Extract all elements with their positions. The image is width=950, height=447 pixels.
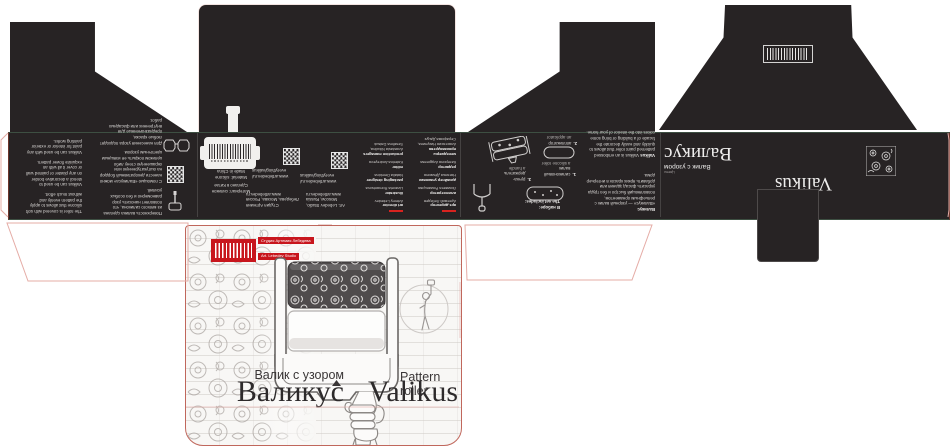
flap-left [10,22,187,132]
barcode-digits [211,160,249,162]
credit-role: менеджеры производства [408,146,456,156]
flap-right [468,22,655,132]
item-en: a handle [509,166,526,171]
item-number: 3. [527,168,531,182]
lid-barcode [763,45,813,63]
credit-name: Katerina Andreyeva [357,159,403,164]
about-heading-en: Valikus [640,153,655,158]
item-number: 1. [572,163,576,177]
credit-name: Anastasia Nikulina, Serafima Datsuk [357,141,403,151]
fold-line [660,133,661,217]
site-en: www.artlebedev.ru [306,191,356,197]
credit-name: Анастасия Никулина, Серафима Дацук [408,136,456,146]
feature-en-3: Valikus can be used with any paint for i… [26,138,82,155]
fold-line [197,133,198,217]
studio-address-ru: Студия Артемия Лебедева, Москва, Россия … [246,188,300,208]
credit-name: Lizaveta Romantsova [357,185,403,190]
sticker-tab-right [254,146,260,160]
about-ru: Валикус «Валикус» — узорный валик с рель… [585,162,655,212]
set-heading-ru: В наборе: [512,204,560,210]
credits-ru: арт-директорАртемий Лебедев иллюстраторЛ… [408,136,456,212]
fold-line [460,133,461,217]
main-title-en: Valikus [354,377,458,407]
credit-name: Катерина Андреева [408,159,456,164]
set-item-3: 3. ручка-держатель a handle [498,168,531,182]
packaging-dieline: The roller is covered with soft silicone… [0,0,950,447]
silicone-roller-illustration [526,186,564,201]
item-number: 2. [573,134,577,146]
specs-en: Material: silicone Made in China [206,169,256,180]
item-en: a silicone roller [542,161,571,166]
sticker-tab-left [200,146,206,160]
store-url-line1: www.artlebedev.ru/ [252,173,298,179]
store-link-ru: www.artlebedev.ru/ everything/valikus [252,168,298,179]
address-en: Art. Lebedev Studio, Moscow, Russia [306,197,356,208]
credit-name: Лизавета Романцова [408,185,456,190]
made-en: Made in China [206,169,256,175]
main-title-ru: Валикус [206,377,344,407]
feature-en-1: The roller is covered with soft silicone… [26,191,82,214]
main-face-panel: Студия Артемия Лебедева Art. Lebedev Stu… [185,225,462,446]
logo-barcode-stripes [215,243,252,258]
item-ru: аппликатор [548,141,571,146]
credits-rule [389,211,403,213]
qr-code-store-ru [283,148,300,165]
qr-code-store-en [331,152,348,169]
feature-ru-1: Поверхность валика сделана из мягкого си… [98,188,162,216]
studio-name-ru: Студия Артемия Лебедева [258,237,314,244]
feature-en-2: Valikus can be used to stencil a decorat… [26,159,82,187]
handle-illustration [468,182,498,212]
barcode [209,144,251,159]
credit-name: Natalia Demkina [357,172,403,177]
thumb-tab [757,189,819,262]
about-text-ru: «Валикус» — узорный валик с рельефным ор… [587,173,655,206]
qr-code [167,166,184,183]
item-en: an applicator [547,135,572,140]
credit-name: Artemy Lebedev [357,198,403,203]
set-item-2: 2. аппликатор an applicator [537,134,577,146]
store-link-en: www.artlebedev.ru/ everything/valikus [300,173,346,184]
feature-ru-3: Для нанесения узора подходят любые краск… [98,117,162,145]
credits-en: art directorArtemy Lebedev illustratorLi… [357,136,403,212]
credits-rule [442,211,456,213]
roller-pictogram [167,190,183,213]
set-item-1: 1. силиконовый валик a silicone roller [532,163,576,177]
lid-flap [659,5,917,130]
features-en: The roller is covered with soft silicone… [26,136,82,214]
store-url-line2: everything/valikus [252,168,298,174]
material-en: Material: silicone [206,174,256,180]
person-illustration [399,278,449,340]
studio-logo [211,239,256,262]
studio-address-en: Art. Lebedev Studio, Moscow, Russia www.… [306,192,356,208]
glasses-icon [163,139,190,153]
face-title-ru: Цветы Валик с узором Валикус [664,144,756,174]
store-url-line1: www.artlebedev.ru/ [300,178,346,184]
about-en: Valikus Valikus is an embossed patterned… [585,131,655,158]
about-heading-ru: Валикус [585,206,655,212]
features-ru: Поверхность валика сделана из мягкого си… [98,134,162,216]
face-subtitle-ru: Валик с узором [664,163,756,170]
applicator-roller-illustration [543,146,575,159]
assembled-roller-illustration [487,136,533,166]
credit-name: Артемий Лебедев [408,198,456,203]
item-ru: силиконовый валик [544,166,570,177]
face-title-ru-text: Валикус [664,144,756,163]
pattern-swatch [866,146,896,176]
pattern-name-ru: Цветы [664,170,756,174]
address-ru: Студия Артемия Лебедева, Москва, Россия [246,197,300,208]
credit-name: Наталья Дёмкина [408,172,456,177]
item-ru: ручка-держатель [504,171,525,182]
store-url-line2: everything/valikus [300,173,346,179]
feature-ru-2: С помощью «Валикуса» можно нанести декор… [98,150,162,184]
